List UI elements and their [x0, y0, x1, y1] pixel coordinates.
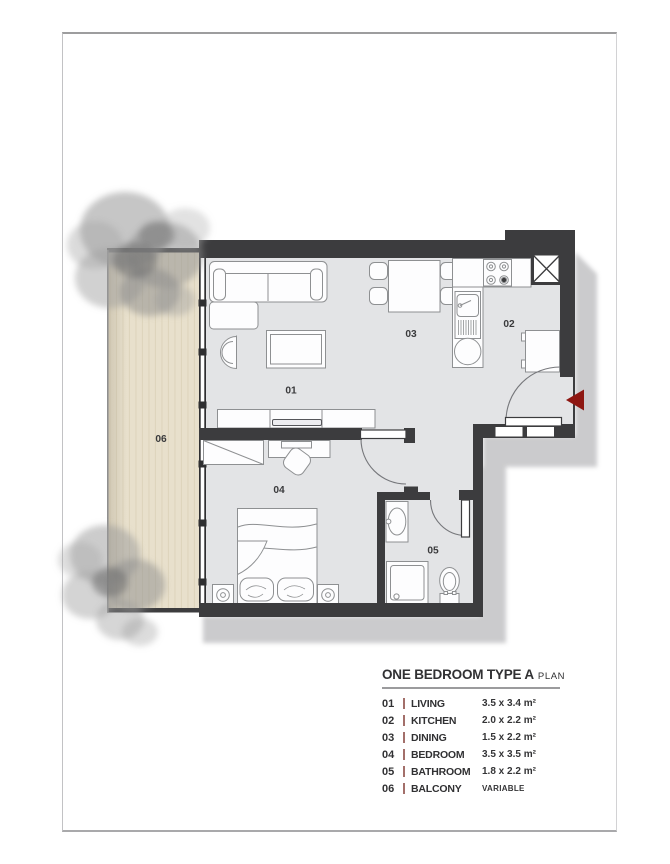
legend-room-number: 06 — [382, 783, 402, 795]
tv-console — [218, 410, 376, 429]
room-label-balcony: 06 — [155, 434, 167, 445]
legend-title-suffix: PLAN — [538, 671, 565, 682]
sofa-chaise — [210, 302, 259, 329]
legend-separator — [403, 783, 405, 795]
wall-bottom — [199, 603, 483, 617]
legend-room-number: 01 — [382, 698, 402, 710]
legend-row: 04 BEDROOM 3.5 x 3.5 m² — [382, 746, 582, 763]
fridge — [526, 331, 560, 373]
wall-bathroom-left — [377, 492, 385, 605]
legend-room-number: 05 — [382, 766, 402, 778]
toilet — [440, 568, 460, 594]
tree-top — [67, 192, 210, 316]
wall-partition — [199, 428, 362, 440]
legend-separator — [403, 715, 405, 727]
bedroom-door — [361, 430, 407, 439]
dining-chair — [370, 263, 388, 280]
room-label-kitchen: 02 — [503, 319, 515, 330]
wall-right — [560, 258, 575, 377]
legend-title: ONE BEDROOM TYPE APLAN — [382, 666, 582, 684]
legend-room-area: 3.5 x 3.4 m² — [482, 698, 536, 709]
room-label-living: 01 — [285, 386, 297, 397]
wall-top — [199, 240, 513, 258]
dining-chair — [370, 288, 388, 305]
legend-row: 05 BATHROOM 1.8 x 2.2 m² — [382, 763, 582, 780]
legend-room-number: 03 — [382, 732, 402, 744]
legend-room-name: BALCONY — [411, 783, 482, 795]
legend-room-name: KITCHEN — [411, 715, 482, 727]
kitchen-basin — [455, 338, 481, 364]
legend-room-area: 1.5 x 2.2 m² — [482, 732, 536, 743]
legend-row: 02 KITCHEN 2.0 x 2.2 m² — [382, 712, 582, 729]
legend: ONE BEDROOM TYPE APLAN 01 LIVING 3.5 x 3… — [382, 666, 582, 797]
legend-room-area: 1.8 x 2.2 m² — [482, 766, 536, 777]
legend-room-name: BATHROOM — [411, 766, 482, 778]
room-label-bathroom: 05 — [427, 546, 439, 557]
legend-room-number: 02 — [382, 715, 402, 727]
wall-bathroom-top — [377, 492, 430, 500]
bathroom-door — [462, 500, 470, 537]
room-label-dining: 03 — [405, 329, 417, 340]
legend-room-area: 2.0 x 2.2 m² — [482, 715, 536, 726]
tv — [273, 420, 322, 426]
pillow — [240, 578, 274, 601]
legend-separator — [403, 766, 405, 778]
legend-separator — [403, 749, 405, 761]
entry-door — [506, 418, 562, 427]
legend-title-main: ONE BEDROOM TYPE A — [382, 667, 534, 682]
legend-room-area: 3.5 x 3.5 m² — [482, 749, 536, 760]
wall-right-lower — [473, 438, 483, 605]
legend-room-name: DINING — [411, 732, 482, 744]
legend-room-name: LIVING — [411, 698, 482, 710]
room-label-bedroom: 04 — [273, 485, 285, 496]
legend-rule — [382, 687, 560, 689]
dining-table — [389, 261, 441, 313]
legend-room-name: BEDROOM — [411, 749, 482, 761]
legend-separator — [403, 732, 405, 744]
legend-row: 03 DINING 1.5 x 2.2 m² — [382, 729, 582, 746]
legend-room-area: VARIABLE — [482, 784, 525, 793]
legend-row: 01 LIVING 3.5 x 3.4 m² — [382, 695, 582, 712]
legend-row: 06 BALCONY VARIABLE — [382, 780, 582, 797]
service-shaft — [533, 254, 561, 284]
legend-room-number: 04 — [382, 749, 402, 761]
legend-separator — [403, 698, 405, 710]
